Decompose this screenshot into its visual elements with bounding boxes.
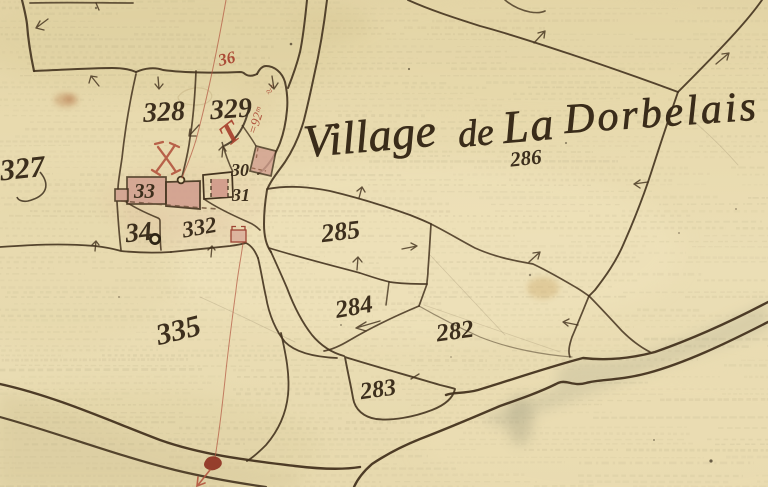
- svg-text:328: 328: [141, 96, 186, 129]
- svg-text:34: 34: [123, 216, 154, 249]
- svg-text:33: 33: [133, 179, 155, 203]
- svg-text:329: 329: [208, 92, 253, 126]
- svg-text:285: 285: [318, 215, 361, 249]
- svg-text:327: 327: [0, 150, 47, 188]
- svg-text:283: 283: [358, 374, 398, 405]
- svg-text:30: 30: [230, 160, 249, 180]
- svg-text:de: de: [456, 111, 496, 156]
- svg-text:31: 31: [231, 185, 250, 205]
- svg-text:282: 282: [434, 316, 476, 348]
- svg-text:La: La: [499, 98, 557, 153]
